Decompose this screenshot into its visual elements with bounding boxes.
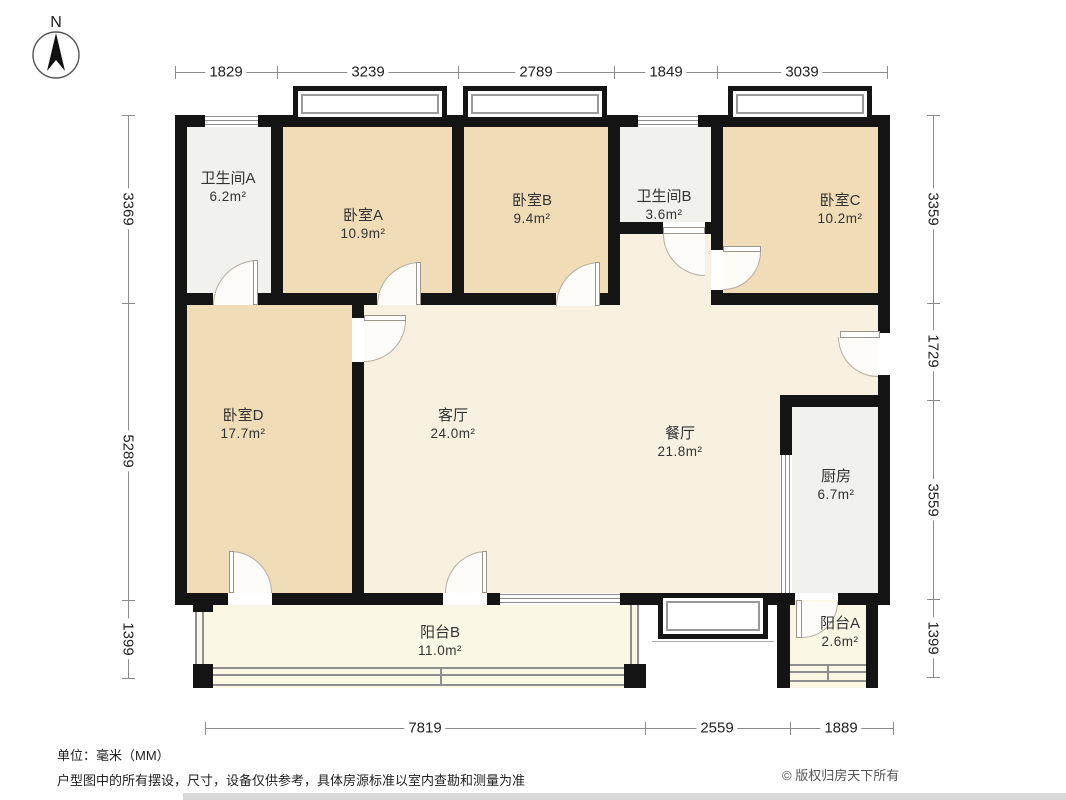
room-label-dining: 餐厅 21.8m² xyxy=(657,425,702,461)
bottom-divider xyxy=(183,793,1066,800)
door-leaf xyxy=(663,227,705,234)
railing-post xyxy=(193,664,213,688)
dim-label-right-1: 1729 xyxy=(925,330,942,371)
room-area: 6.7m² xyxy=(817,487,854,504)
wall xyxy=(780,407,792,455)
wall xyxy=(608,115,620,305)
railing-line xyxy=(195,667,640,669)
room-name: 卧室B xyxy=(512,192,552,211)
bay-window xyxy=(658,593,768,639)
room-name: 餐厅 xyxy=(657,425,702,444)
dim-label-left-2: 1399 xyxy=(120,618,137,659)
room-label-bedroom-a: 卧室A 10.9m² xyxy=(340,207,385,243)
room-area: 24.0m² xyxy=(430,426,475,443)
wall xyxy=(838,593,890,605)
dim-label-right-0: 3359 xyxy=(925,188,942,229)
dim-tick xyxy=(122,600,135,601)
window xyxy=(500,593,620,605)
room-name: 卫生间B xyxy=(636,188,691,207)
bay-window xyxy=(293,86,447,122)
dim-tick xyxy=(717,66,718,79)
room-name: 卧室A xyxy=(340,207,385,226)
dim-label-top-4: 3039 xyxy=(781,64,822,81)
dim-label-top-1: 3239 xyxy=(347,64,388,81)
room-label-bedroom-d: 卧室D 17.7m² xyxy=(220,407,265,443)
room-name: 阳台B xyxy=(418,624,462,643)
wall xyxy=(878,375,890,600)
room-area: 3.6m² xyxy=(636,207,691,224)
room-label-bathroom-a: 卫生间A 6.2m² xyxy=(200,170,255,206)
dim-label-right-3: 1399 xyxy=(925,617,942,658)
room-area: 17.7m² xyxy=(220,426,265,443)
dim-label-bottom-1: 2559 xyxy=(696,720,737,737)
dim-tick xyxy=(645,722,646,735)
door-leaf xyxy=(364,315,406,321)
dim-tick xyxy=(927,303,940,304)
railing-line xyxy=(637,605,639,669)
dim-tick xyxy=(122,115,135,116)
window xyxy=(205,115,258,127)
dim-tick xyxy=(458,66,459,79)
room-label-kitchen: 厨房 6.7m² xyxy=(817,468,854,504)
dim-label-left-1: 5289 xyxy=(120,430,137,471)
disclaimer-note: 户型图中的所有摆设，尺寸，设备仅供参考，具体房源标准以室内查勘和测量为准 xyxy=(57,770,525,789)
dim-tick xyxy=(614,66,615,79)
dim-label-top-3: 1849 xyxy=(645,64,686,81)
railing-line xyxy=(195,684,640,686)
room-label-bathroom-b: 卫生间B 3.6m² xyxy=(636,188,691,224)
room-area: 6.2m² xyxy=(200,189,255,206)
north-arrow-icon xyxy=(47,33,65,71)
door-leaf xyxy=(595,262,600,306)
wall xyxy=(711,293,890,305)
unit-note: 单位：毫米（MM） xyxy=(57,745,170,764)
room-label-living: 客厅 24.0m² xyxy=(430,407,475,443)
room-label-balcony-a: 阳台A 2.6m² xyxy=(820,615,860,651)
railing-line xyxy=(195,674,640,676)
railing-post xyxy=(193,598,213,612)
dim-tick xyxy=(175,66,176,79)
wall xyxy=(600,293,608,305)
dim-label-top-0: 1829 xyxy=(205,64,246,81)
room-area: 10.2m² xyxy=(817,211,862,228)
wall xyxy=(780,395,890,407)
room-fill-bedroom-d xyxy=(187,305,352,593)
dim-tick xyxy=(122,678,135,679)
room-area: 9.4m² xyxy=(512,211,552,228)
room-name: 厨房 xyxy=(817,468,854,487)
dim-label-bottom-2: 1889 xyxy=(820,720,861,737)
railing-post xyxy=(624,664,646,688)
room-area: 2.6m² xyxy=(820,634,860,651)
room-label-balcony-b: 阳台B 11.0m² xyxy=(418,624,462,660)
railing-line xyxy=(440,667,442,686)
dim-tick xyxy=(887,66,888,79)
dim-tick xyxy=(927,599,940,600)
room-label-bedroom-b: 卧室B 9.4m² xyxy=(512,192,552,228)
dim-tick xyxy=(927,115,940,116)
wall xyxy=(705,222,723,234)
wall xyxy=(175,115,187,600)
wall xyxy=(258,293,377,305)
railing-line xyxy=(195,605,197,669)
room-name: 客厅 xyxy=(430,407,475,426)
dim-label-bottom-0: 7819 xyxy=(404,720,445,737)
window xyxy=(638,115,698,127)
bay-window xyxy=(728,86,872,122)
wall xyxy=(187,293,213,305)
door-leaf xyxy=(723,246,761,252)
room-area: 21.8m² xyxy=(657,444,702,461)
room-name: 卧室D xyxy=(220,407,265,426)
railing-line xyxy=(630,605,632,669)
wall xyxy=(421,293,556,305)
room-area: 11.0m² xyxy=(418,643,462,660)
wall xyxy=(272,593,443,605)
wall xyxy=(487,593,500,605)
dim-tick xyxy=(893,722,894,735)
dim-tick xyxy=(790,722,791,735)
entry-opening xyxy=(878,333,890,375)
dim-tick xyxy=(205,722,206,735)
entry-door-leaf xyxy=(840,331,880,338)
door-leaf xyxy=(229,551,234,593)
dim-tick xyxy=(277,66,278,79)
door-leaf xyxy=(416,262,421,305)
door-leaf xyxy=(482,551,487,593)
bay-window-outline xyxy=(652,641,774,642)
dim-label-right-2: 3559 xyxy=(925,479,942,520)
kitchen-opening xyxy=(780,455,792,593)
north-label: N xyxy=(50,14,62,31)
room-name: 阳台A xyxy=(820,615,860,634)
wall xyxy=(352,362,364,593)
railing-line xyxy=(202,605,204,669)
room-name: 卧室C xyxy=(817,192,862,211)
door-leaf xyxy=(796,600,802,638)
wall xyxy=(620,593,658,605)
room-name: 卫生间A xyxy=(200,170,255,189)
copyright-note: © 版权归房天下所有 xyxy=(782,765,899,784)
dim-tick xyxy=(927,677,940,678)
north-compass-icon: N xyxy=(28,8,84,88)
dim-tick xyxy=(927,400,940,401)
dim-label-top-2: 2789 xyxy=(515,64,556,81)
door-leaf xyxy=(253,260,258,305)
room-label-bedroom-c: 卧室C 10.2m² xyxy=(817,192,862,228)
wall xyxy=(777,598,790,688)
room-area: 10.9m² xyxy=(340,226,385,243)
wall xyxy=(866,598,878,688)
wall xyxy=(452,115,464,305)
dim-label-left-0: 3369 xyxy=(120,188,137,229)
bay-window xyxy=(463,86,607,122)
room-fill-bathroom-a xyxy=(187,127,271,293)
dim-tick xyxy=(122,303,135,304)
railing-line xyxy=(827,664,829,682)
wall xyxy=(271,115,283,305)
wall xyxy=(352,305,364,318)
floor-plan: N xyxy=(0,0,1066,800)
